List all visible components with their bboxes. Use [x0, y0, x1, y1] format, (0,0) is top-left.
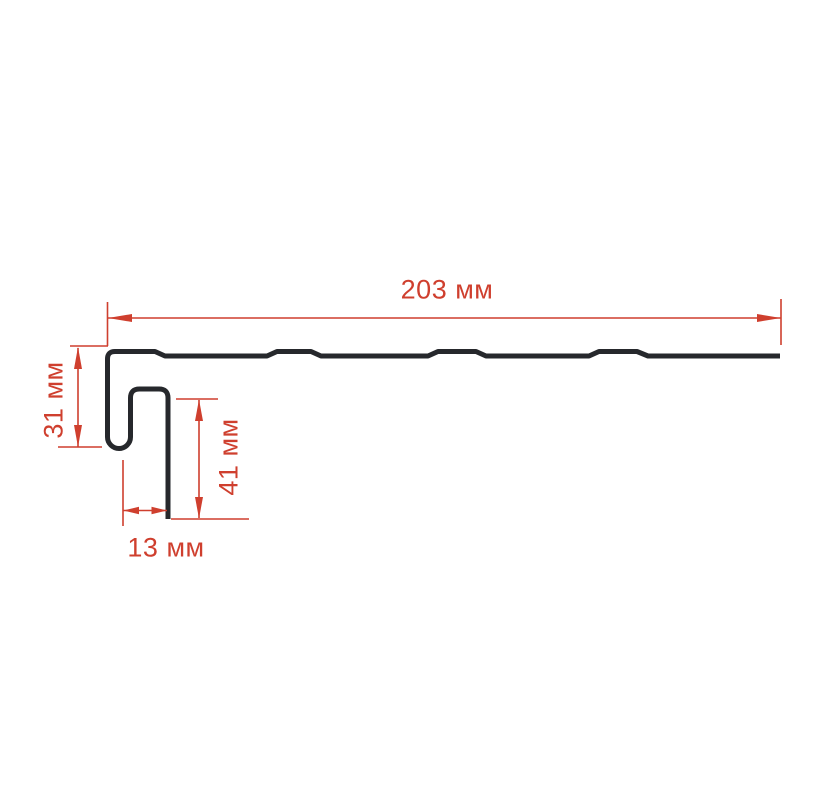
- profile-diagram: 203 мм 31 мм 41 мм 13 мм: [0, 0, 839, 810]
- dim-41-label: 41 мм: [213, 418, 243, 495]
- arrow-203-left-icon: [108, 314, 132, 322]
- arrow-41-down-icon: [195, 497, 203, 519]
- arrow-31-up-icon: [74, 347, 82, 369]
- dimension-arrowheads: [74, 314, 781, 519]
- dim-13-label: 13 мм: [127, 532, 204, 562]
- arrow-41-up-icon: [195, 400, 203, 422]
- profile-outline: [108, 352, 781, 520]
- arrow-13-right-icon: [152, 507, 168, 514]
- arrow-203-right-icon: [757, 314, 781, 322]
- dim-203-label: 203 мм: [401, 274, 494, 304]
- profile-drawing-canvas: 203 мм 31 мм 41 мм 13 мм: [0, 0, 839, 810]
- dim-31-label: 31 мм: [38, 361, 68, 438]
- arrow-13-left-icon: [124, 507, 140, 514]
- arrow-31-down-icon: [74, 425, 82, 447]
